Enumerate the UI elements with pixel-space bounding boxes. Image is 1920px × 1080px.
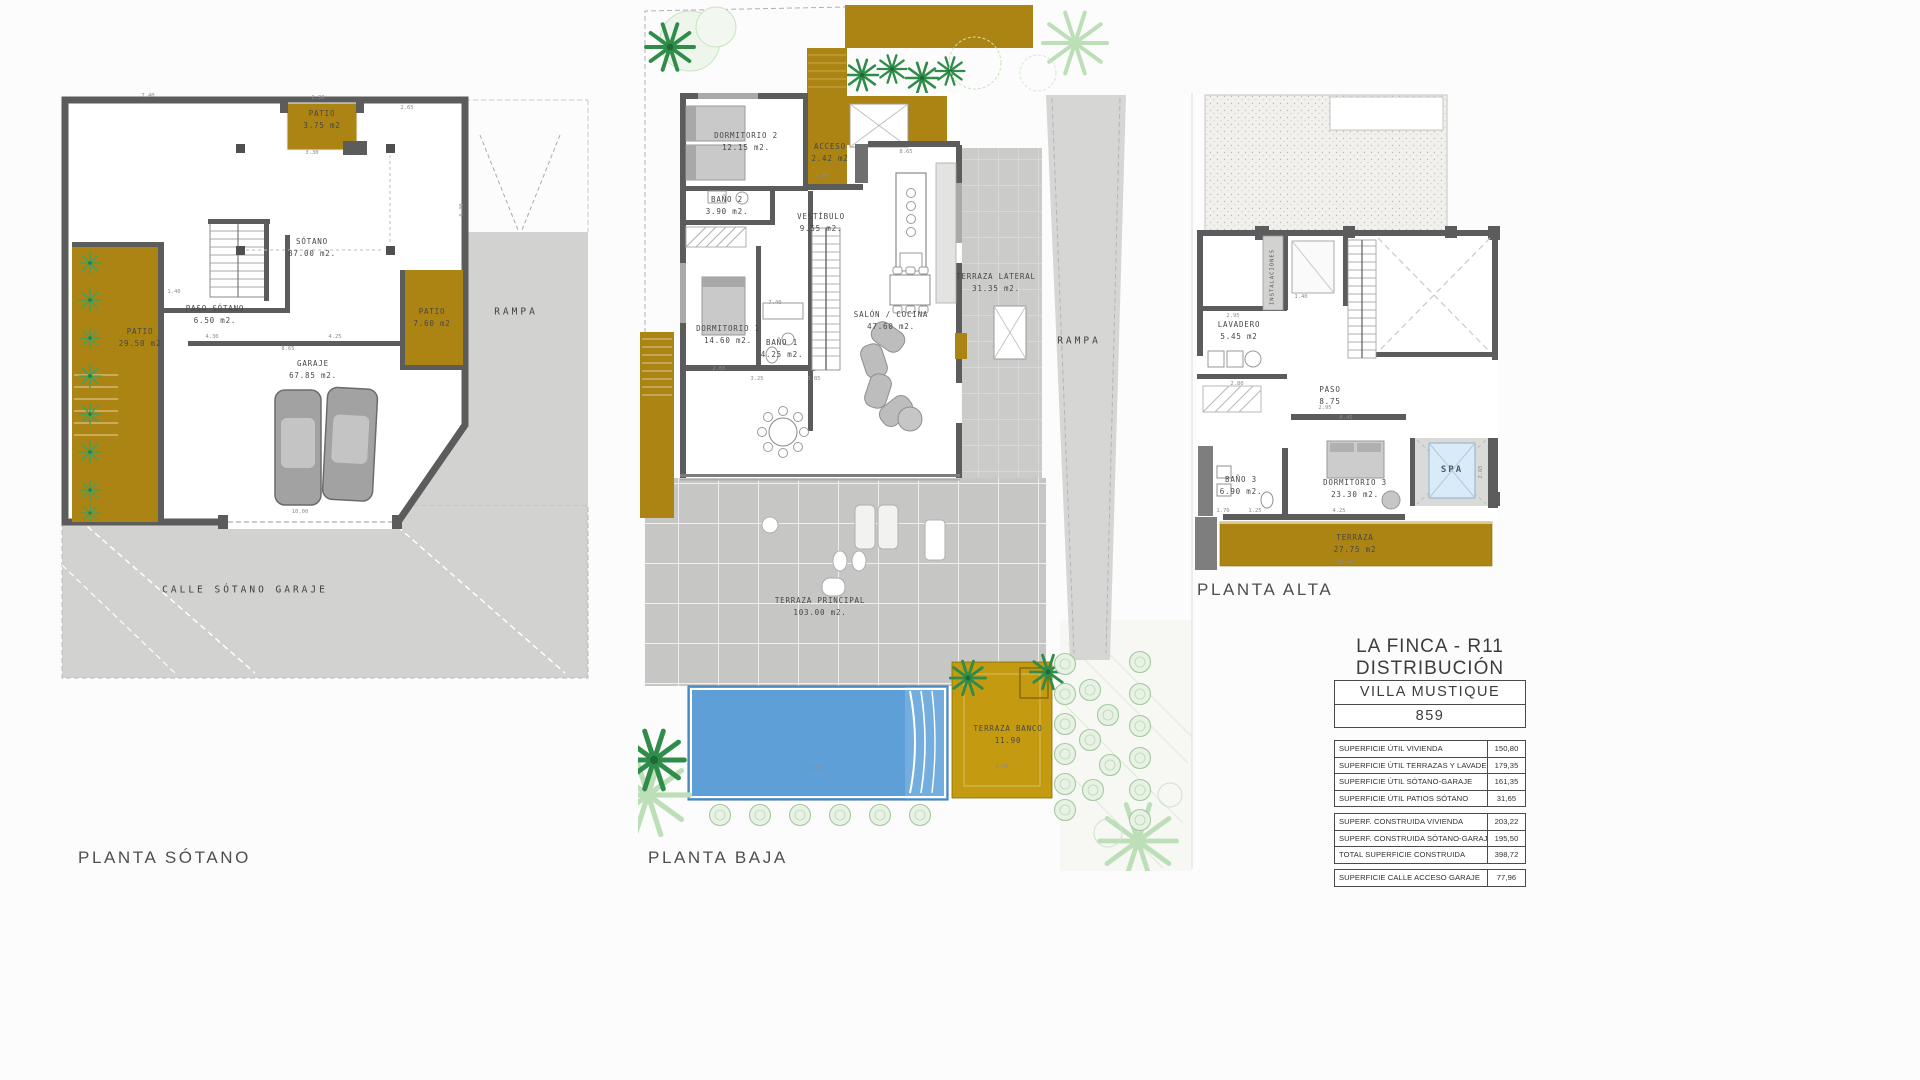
baja-floor-drawing xyxy=(638,3,1198,871)
plan-baja xyxy=(638,3,1198,871)
villa-name: VILLA MUSTIQUE xyxy=(1335,681,1525,704)
table-row: SUPERF. CONSTRUIDA SÓTANO-GARAJE195,50 xyxy=(1335,830,1525,847)
util-surface-table: SUPERFICIE ÚTIL VIVIENDA150,80 SUPERFICI… xyxy=(1334,740,1526,807)
villa-name-box: VILLA MUSTIQUE 859 xyxy=(1334,680,1526,728)
construida-surface-table: SUPERF. CONSTRUIDA VIVIENDA203,22 SUPERF… xyxy=(1334,813,1526,864)
project-subtitle: DISTRIBUCIÓN xyxy=(1330,658,1530,680)
sotano-floor-drawing xyxy=(60,95,595,685)
calle-surface-table: SUPERFICIE CALLE ACCESO GARAJE77,96 xyxy=(1334,869,1526,887)
table-row: SUPERFICIE ÚTIL VIVIENDA150,80 xyxy=(1335,741,1525,757)
villa-number: 859 xyxy=(1335,704,1525,728)
table-row: SUPERFICIE ÚTIL PATIOS SÓTANO31,65 xyxy=(1335,790,1525,807)
table-row: SUPERFICIE ÚTIL TERRAZAS Y LAVADERO179,3… xyxy=(1335,757,1525,774)
plan-title-sotano: PLANTA SÓTANO xyxy=(78,848,251,868)
table-row: SUPERFICIE CALLE ACCESO GARAJE77,96 xyxy=(1335,870,1525,886)
alta-floor-drawing xyxy=(1195,88,1505,608)
table-row: SUPERF. CONSTRUIDA VIVIENDA203,22 xyxy=(1335,814,1525,830)
project-title: LA FINCA - R11 xyxy=(1330,636,1530,658)
plan-sotano xyxy=(60,95,595,685)
blueprint-canvas: PATIO3.75 m2 SÓTANO87.00 m2. PASO SÓTANO… xyxy=(0,0,1920,1080)
plan-alta xyxy=(1195,88,1505,608)
table-row: TOTAL SUPERFICIE CONSTRUIDA398,72 xyxy=(1335,846,1525,863)
table-row: SUPERFICIE ÚTIL SÓTANO-GARAJE161,35 xyxy=(1335,773,1525,790)
